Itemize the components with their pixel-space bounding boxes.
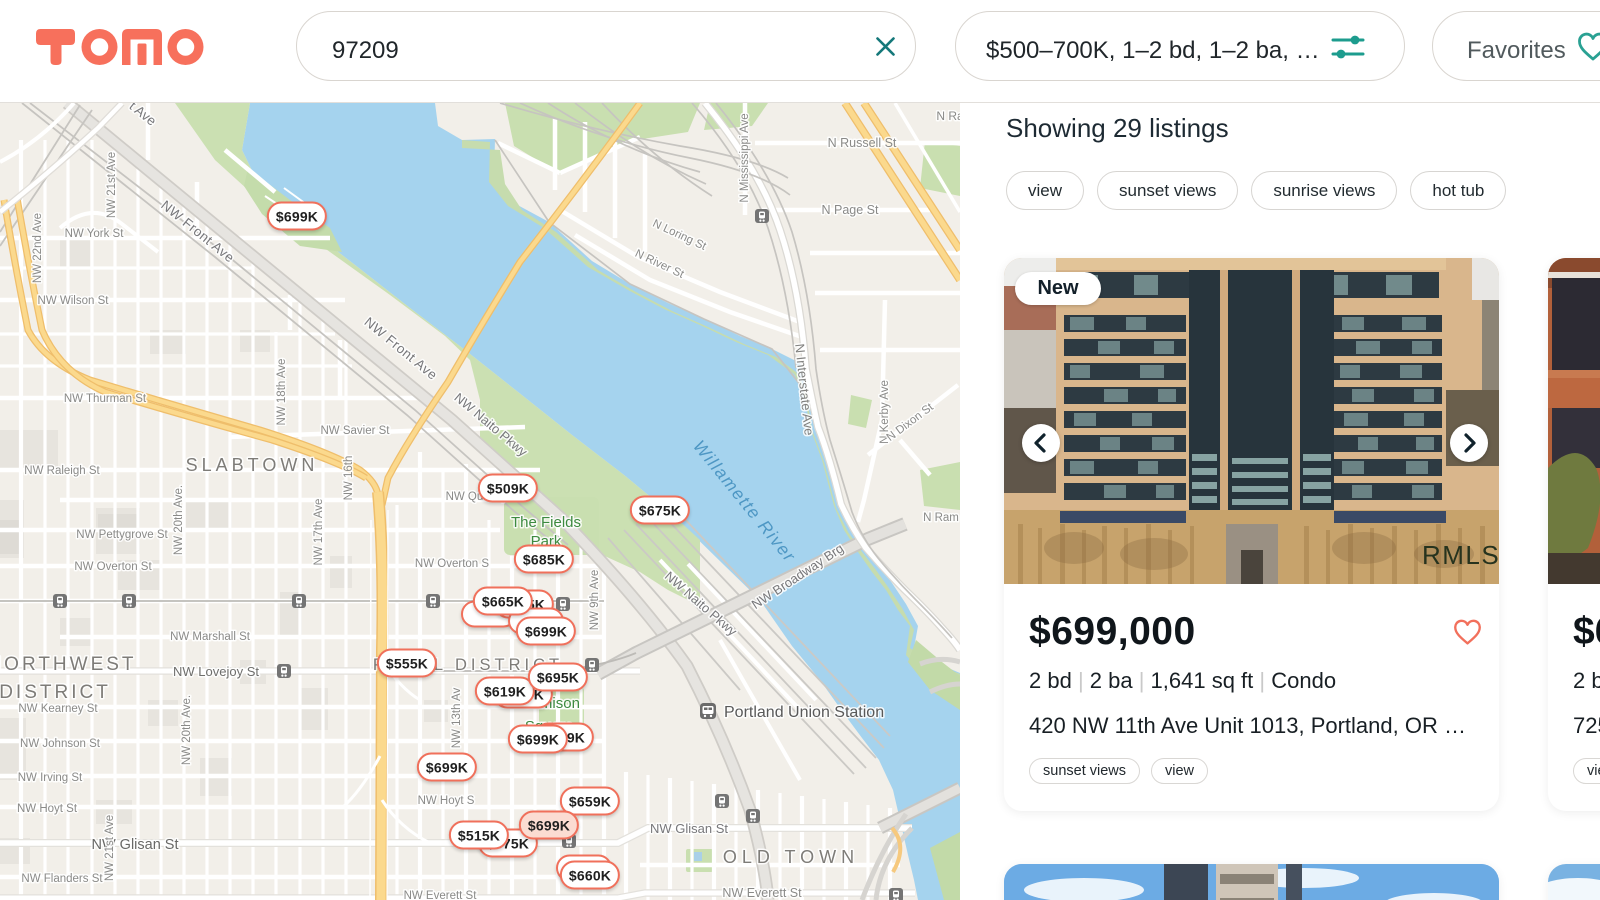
svg-text:NW Hoyt S: NW Hoyt S <box>418 795 475 807</box>
svg-text:NW Marshall St: NW Marshall St <box>170 631 251 643</box>
svg-text:The Fields: The Fields <box>511 514 581 531</box>
svg-text:NW Lovejoy St: NW Lovejoy St <box>173 664 259 679</box>
svg-text:NW Thurman St: NW Thurman St <box>64 393 147 405</box>
svg-text:NW Raleigh St: NW Raleigh St <box>24 465 100 477</box>
svg-text:NW 20th Ave.: NW 20th Ave. <box>181 695 193 765</box>
svg-text:N Ra: N Ra <box>936 109 960 123</box>
svg-text:NW Johnson St: NW Johnson St <box>20 738 101 750</box>
svg-text:OLD TOWN: OLD TOWN <box>723 847 859 867</box>
svg-text:NW 21st Ave: NW 21st Ave <box>106 152 118 218</box>
svg-text:NW York St: NW York St <box>65 228 125 240</box>
svg-text:SLABTOWN: SLABTOWN <box>186 455 319 475</box>
svg-text:NW 18th Ave: NW 18th Ave <box>276 359 288 426</box>
svg-text:NW Glisan St: NW Glisan St <box>650 821 728 836</box>
svg-text:NW 16th: NW 16th <box>343 456 355 501</box>
svg-text:NW Everett St: NW Everett St <box>404 890 478 900</box>
svg-text:NW 9th Ave: NW 9th Ave <box>589 570 601 631</box>
svg-text:NW Wilson St: NW Wilson St <box>38 295 110 307</box>
svg-text:Portland Union Station: Portland Union Station <box>724 704 884 721</box>
svg-text:NW Flanders St: NW Flanders St <box>21 873 103 885</box>
svg-text:NW Everett St: NW Everett St <box>722 886 802 900</box>
svg-text:N Ram: N Ram <box>923 512 959 524</box>
svg-text:NORTHWEST: NORTHWEST <box>0 654 137 675</box>
svg-text:NW Pettygrove St: NW Pettygrove St <box>76 529 168 541</box>
svg-text:NW 22nd Ave: NW 22nd Ave <box>32 213 44 283</box>
svg-text:NW Overton St: NW Overton St <box>74 561 152 573</box>
svg-text:NW Kearney St: NW Kearney St <box>18 703 98 715</box>
svg-text:NW Savier St: NW Savier St <box>320 425 390 437</box>
svg-text:NW 20th Ave.: NW 20th Ave. <box>173 485 185 555</box>
svg-text:N Mississippi Ave: N Mississippi Ave <box>739 113 751 202</box>
svg-text:DISTRICT: DISTRICT <box>0 682 111 703</box>
svg-text:NW Irving St: NW Irving St <box>18 772 83 784</box>
svg-text:NW 13th Av: NW 13th Av <box>451 687 463 748</box>
svg-text:RMLS: RMLS <box>1422 540 1499 570</box>
svg-text:NW Overton S: NW Overton S <box>415 558 489 570</box>
svg-text:NW 17th Ave: NW 17th Ave <box>313 499 325 566</box>
svg-text:N Russell St: N Russell St <box>828 136 897 150</box>
svg-text:N Page St: N Page St <box>822 203 880 217</box>
svg-text:NW Hoyt St: NW Hoyt St <box>17 803 78 815</box>
svg-text:NW 21st Ave: NW 21st Ave <box>104 815 116 881</box>
